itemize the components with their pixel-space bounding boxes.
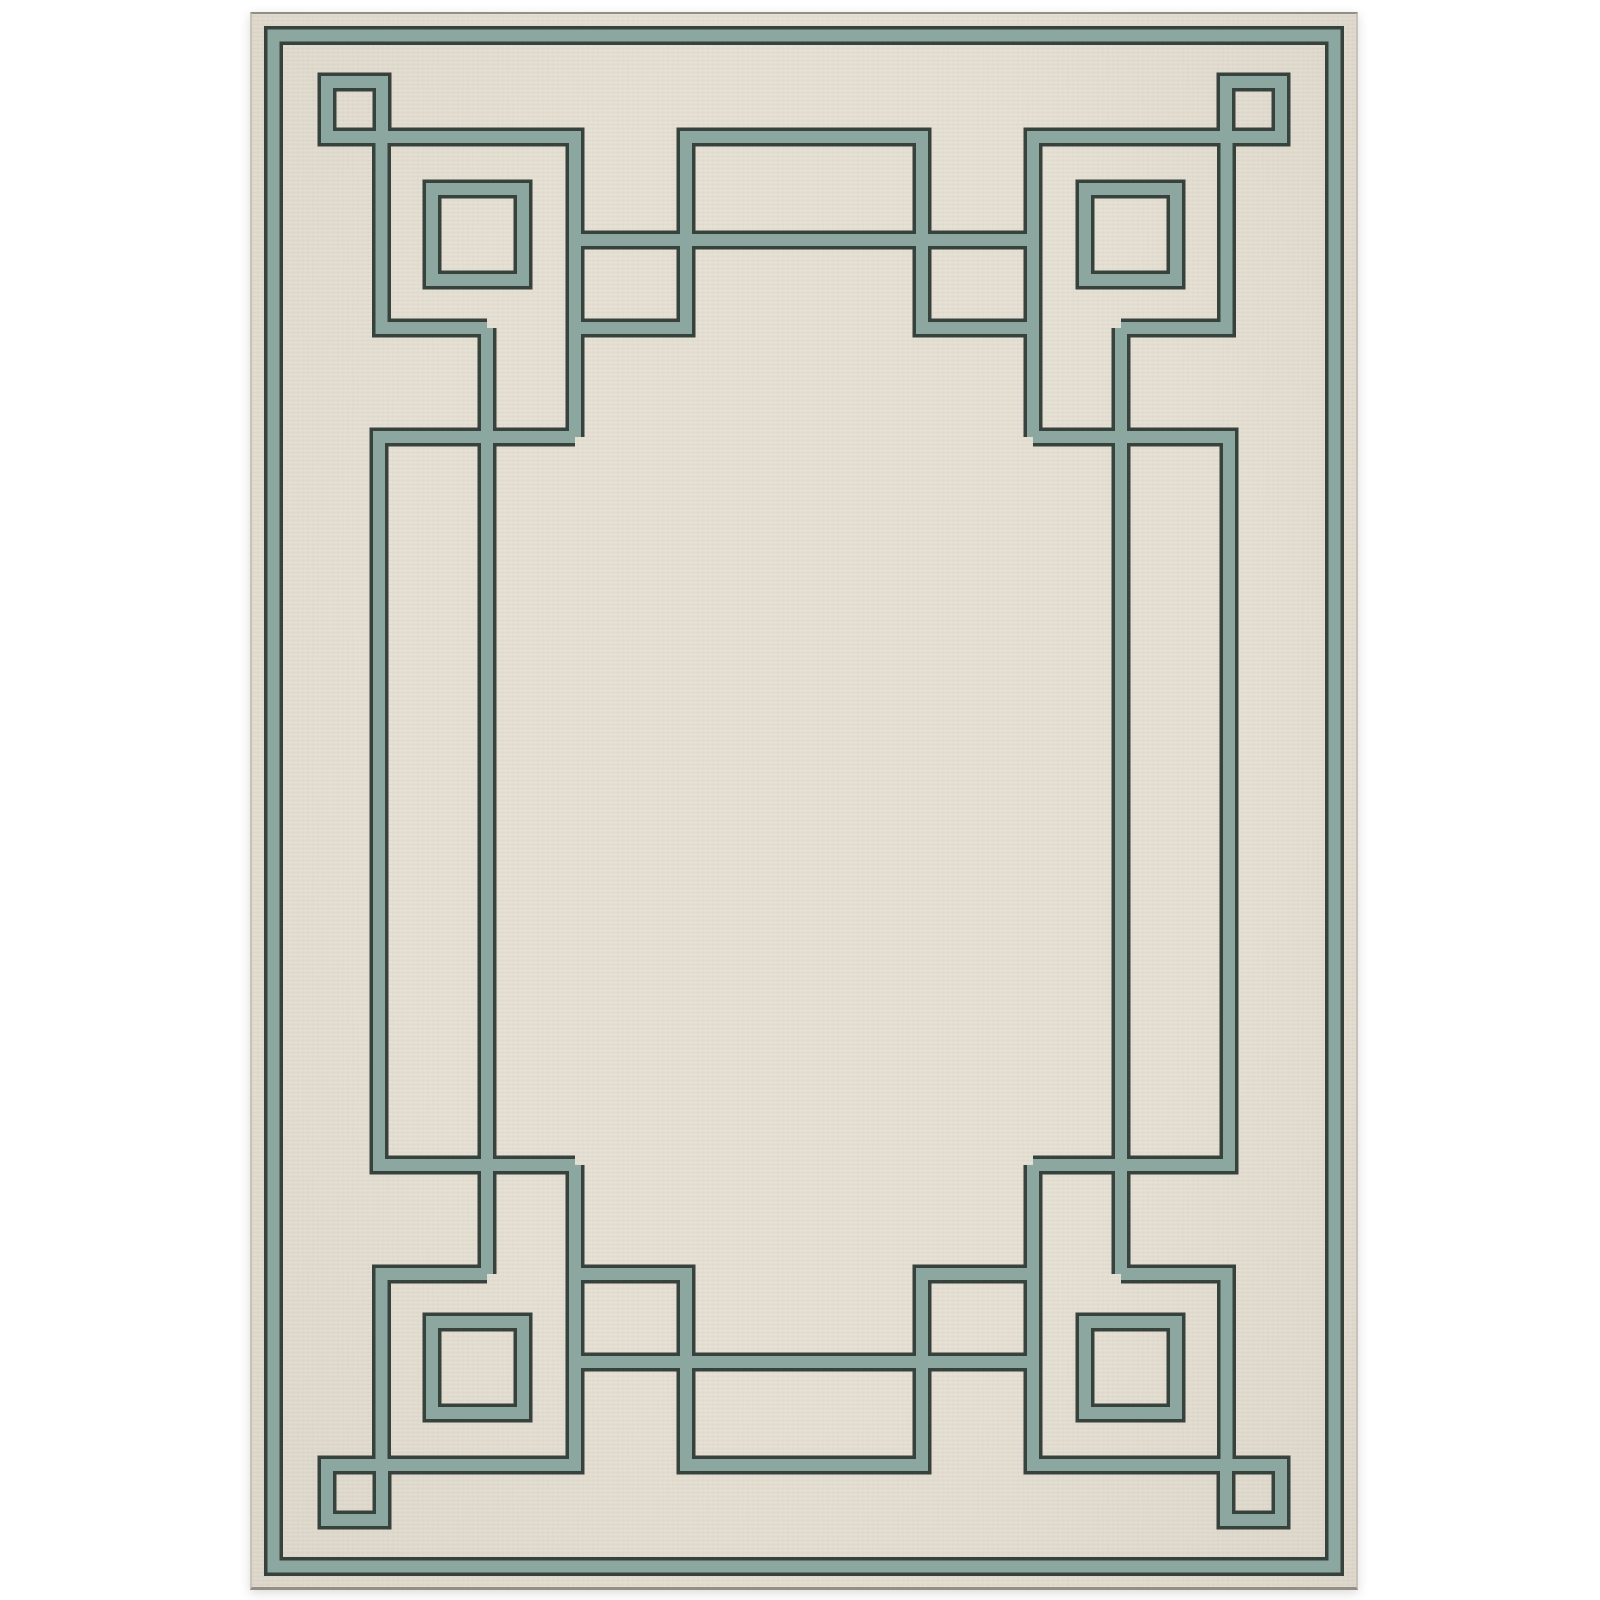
hanging-rect-bl <box>575 1274 686 1362</box>
side-ring-left <box>379 437 487 1165</box>
corner-big-square-bl <box>432 1322 523 1413</box>
pattern-band-layer <box>274 36 1335 1567</box>
side-ring-left <box>379 437 487 1165</box>
corner-big-square-tr <box>1085 189 1176 280</box>
center-rect-bottom <box>686 1362 922 1465</box>
hanging-rect-br <box>922 1274 1033 1362</box>
corner-knot-square-br <box>1226 1465 1281 1520</box>
hanging-rect-tr <box>922 240 1033 328</box>
corner-big-square-br <box>1085 1322 1176 1413</box>
rug-border-pattern <box>0 0 1600 1600</box>
corner-big-square-tr <box>1085 189 1176 280</box>
side-ring-right <box>1121 437 1229 1165</box>
center-rect-top <box>686 137 922 240</box>
corner-big-square-tl <box>432 189 523 280</box>
center-rect-bottom <box>686 1362 922 1465</box>
corner-knot-square-tl <box>327 82 382 137</box>
photo-canvas <box>0 0 1600 1600</box>
side-ring-right <box>1121 437 1229 1165</box>
corner-big-square-br <box>1085 1322 1176 1413</box>
corner-big-square-tl <box>432 189 523 280</box>
hanging-rect-tl <box>575 240 686 328</box>
corner-knot-square-tr <box>1226 82 1281 137</box>
hanging-rect-tr <box>922 240 1033 328</box>
corner-knot-square-bl <box>327 1465 382 1520</box>
hanging-rect-bl <box>575 1274 686 1362</box>
hanging-rect-tl <box>575 240 686 328</box>
center-rect-top <box>686 137 922 240</box>
corner-big-square-bl <box>432 1322 523 1413</box>
hanging-rect-br <box>922 1274 1033 1362</box>
